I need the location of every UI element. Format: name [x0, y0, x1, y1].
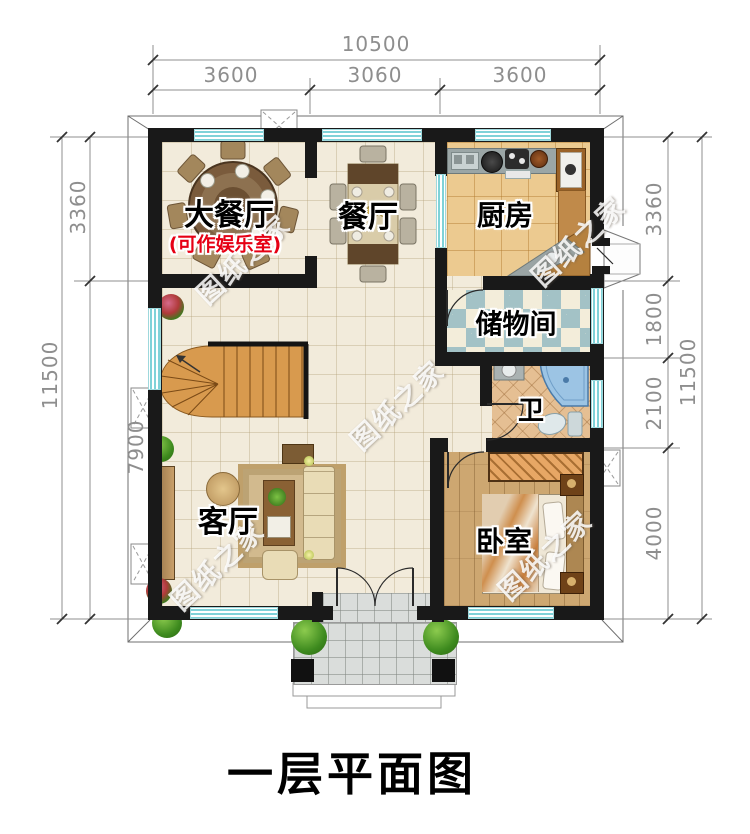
floor-plan-canvas: 图纸之家 图纸之家 图纸之家 图纸之家 图纸之家 大餐厅 (可作娱乐室) 餐厅 …	[0, 0, 750, 834]
dim-top-seg3: 3600	[493, 63, 548, 87]
dim-top-seg1: 3600	[204, 63, 259, 87]
dim-right-seg3: 2100	[642, 376, 666, 431]
dim-right-total: 11500	[676, 338, 700, 407]
dimension-lines	[50, 45, 712, 619]
side-door-leaf	[597, 248, 613, 264]
dim-top-total: 10500	[342, 32, 411, 56]
dim-left-seg1: 3360	[66, 180, 90, 235]
label-living: 客厅	[198, 497, 258, 541]
bedroom-door	[448, 452, 484, 488]
dim-right-seg2: 1800	[642, 292, 666, 347]
label-storage: 储物间	[476, 303, 557, 342]
label-dining-large-note: (可作娱乐室)	[169, 230, 281, 257]
dimension-ticks	[57, 55, 707, 624]
dim-right-seg1: 3360	[642, 182, 666, 237]
dim-left-total: 11500	[38, 341, 62, 410]
dim-top-seg2: 3060	[348, 63, 403, 87]
label-kitchen: 厨房	[477, 194, 533, 234]
label-dining-large: 大餐厅	[184, 190, 274, 234]
label-dining: 餐厅	[338, 192, 398, 236]
dim-right-seg4: 4000	[642, 506, 666, 561]
entry-double-door	[337, 568, 413, 606]
label-bath: 卫	[518, 391, 544, 428]
page-title: 一层平面图	[227, 738, 477, 804]
label-bedroom: 卧室	[476, 520, 532, 560]
dim-left-seg2: 7900	[124, 420, 148, 475]
